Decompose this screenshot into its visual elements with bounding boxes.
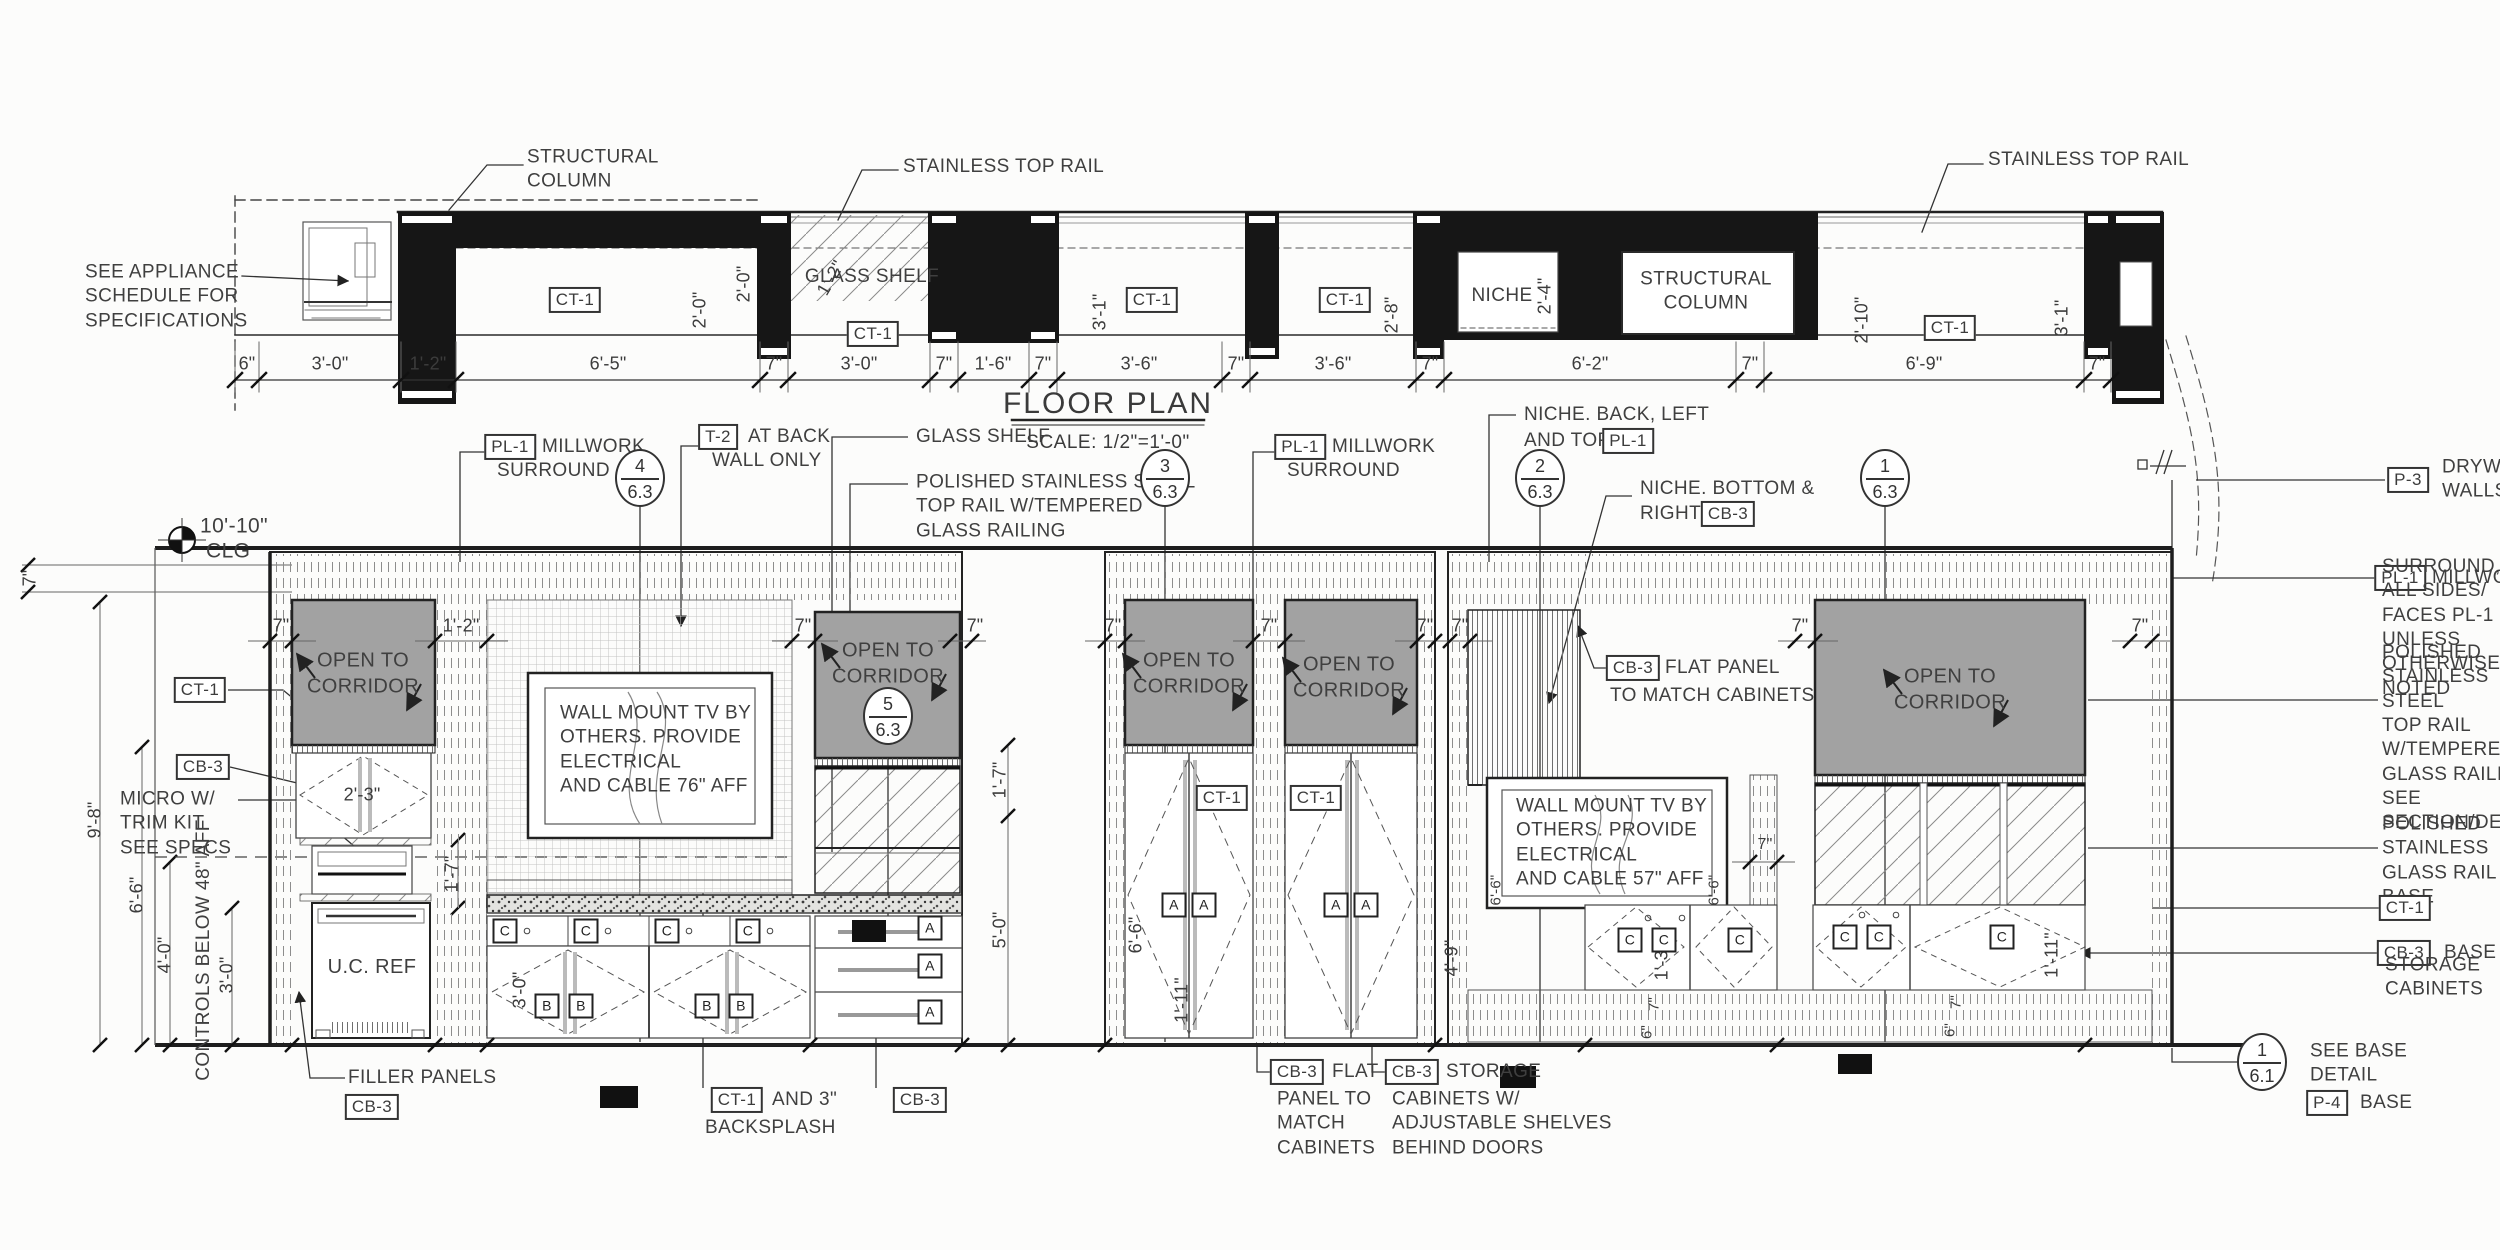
architectural-drawing-sheet: FLOOR PLAN SCALE: 1/2"=1'-0" STRUCTURAL … <box>0 0 2500 1250</box>
floor-plan-title: FLOOR PLAN <box>1003 385 1213 423</box>
elevation-drawing <box>21 518 2250 1108</box>
drawing-canvas <box>0 0 2500 1250</box>
floor-plan-scale: SCALE: 1/2"=1'-0" <box>1026 431 1189 455</box>
floor-plan-drawing <box>228 164 2219 585</box>
